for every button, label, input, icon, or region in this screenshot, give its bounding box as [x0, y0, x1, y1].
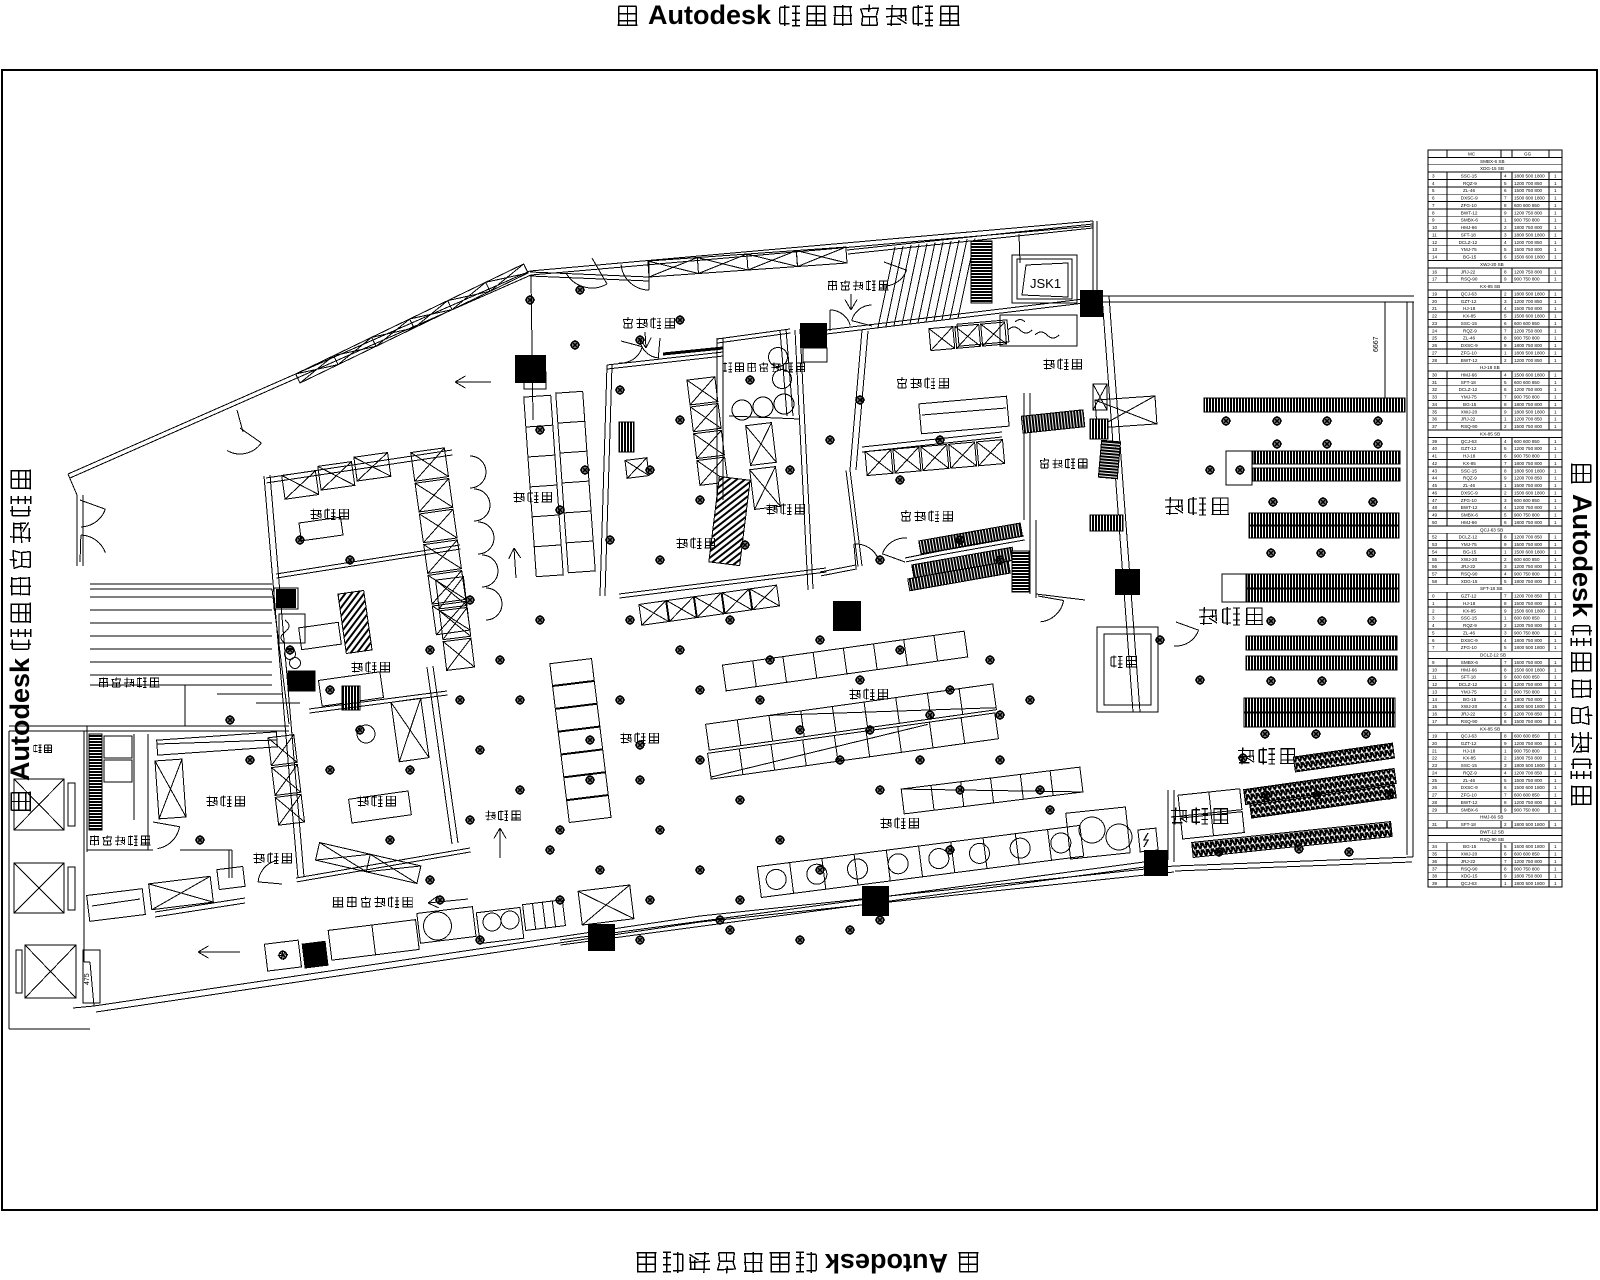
- svg-text:DCLZ-12: DCLZ-12: [1459, 240, 1478, 245]
- svg-text:600 600 850: 600 600 850: [1514, 321, 1540, 326]
- svg-text:8: 8: [1504, 535, 1507, 540]
- svg-text:600 600 850: 600 600 850: [1514, 498, 1540, 503]
- svg-text:12: 12: [1432, 682, 1438, 687]
- svg-text:XWJ-20: XWJ-20: [1461, 557, 1478, 562]
- svg-text:1200 750 800: 1200 750 800: [1514, 682, 1543, 687]
- svg-text:38: 38: [1432, 874, 1438, 879]
- svg-text:KX-85: KX-85: [1463, 608, 1476, 613]
- svg-text:XWJ-20: XWJ-20: [1461, 409, 1478, 414]
- svg-text:8: 8: [1504, 336, 1507, 341]
- svg-text:1: 1: [1554, 645, 1557, 650]
- svg-text:DXSC-9: DXSC-9: [1461, 638, 1478, 643]
- svg-text:Autodesk: Autodesk: [824, 1248, 948, 1278]
- svg-text:7: 7: [1504, 660, 1507, 665]
- svg-text:900 750 800: 900 750 800: [1514, 218, 1540, 223]
- svg-text:HMJ-66 SB: HMJ-66 SB: [1480, 815, 1504, 820]
- svg-text:1: 1: [1554, 225, 1557, 230]
- svg-text:600 600 850: 600 600 850: [1514, 439, 1540, 444]
- svg-text:5: 5: [1504, 446, 1507, 451]
- svg-text:JRJ-22: JRJ-22: [1461, 859, 1476, 864]
- svg-text:YMJ-75: YMJ-75: [1461, 247, 1477, 252]
- svg-text:11: 11: [1432, 233, 1437, 238]
- svg-text:16: 16: [1432, 712, 1438, 717]
- svg-text:1: 1: [1554, 859, 1557, 864]
- svg-text:2: 2: [1504, 689, 1507, 694]
- svg-text:1: 1: [1554, 785, 1557, 790]
- svg-text:9: 9: [1504, 807, 1507, 812]
- svg-text:3: 3: [1504, 233, 1507, 238]
- svg-text:1500 750 800: 1500 750 800: [1514, 542, 1543, 547]
- svg-text:BWT-12: BWT-12: [1461, 358, 1478, 363]
- svg-text:1: 1: [1554, 424, 1557, 429]
- svg-text:5: 5: [1504, 513, 1507, 518]
- svg-text:6: 6: [1504, 188, 1507, 193]
- svg-text:5: 5: [1432, 188, 1435, 193]
- svg-text:23: 23: [1432, 763, 1438, 768]
- svg-text:5: 5: [1504, 247, 1507, 252]
- svg-text:1800 500 1800: 1800 500 1800: [1514, 704, 1545, 709]
- svg-text:3: 3: [1504, 630, 1507, 635]
- svg-text:29: 29: [1432, 807, 1438, 812]
- svg-text:1: 1: [1554, 299, 1557, 304]
- svg-text:1500 750 800: 1500 750 800: [1514, 483, 1543, 488]
- svg-text:9: 9: [1504, 874, 1507, 879]
- svg-text:1800 750 800: 1800 750 800: [1514, 638, 1543, 643]
- svg-text:BG-15: BG-15: [1463, 402, 1477, 407]
- svg-text:1500 600 1800: 1500 600 1800: [1514, 490, 1545, 495]
- svg-text:SFT-18: SFT-18: [1461, 233, 1477, 238]
- svg-text:1: 1: [1554, 874, 1557, 879]
- svg-text:HMJ-66: HMJ-66: [1461, 667, 1478, 672]
- svg-text:DCLZ-12 SB: DCLZ-12 SB: [1480, 653, 1506, 658]
- svg-text:KX-85: KX-85: [1463, 314, 1476, 319]
- svg-text:1200 700 850: 1200 700 850: [1514, 712, 1543, 717]
- svg-text:24: 24: [1432, 328, 1438, 333]
- svg-text:SSC-15: SSC-15: [1461, 468, 1478, 473]
- svg-text:54: 54: [1432, 549, 1438, 554]
- svg-text:43: 43: [1432, 468, 1438, 473]
- svg-text:XDG-15: XDG-15: [1461, 579, 1478, 584]
- svg-text:1: 1: [1554, 844, 1557, 849]
- svg-text:QCJ-63: QCJ-63: [1461, 881, 1477, 886]
- svg-text:21: 21: [1432, 748, 1438, 753]
- svg-text:RSQ-90: RSQ-90: [1461, 572, 1478, 577]
- svg-text:DCLZ-12: DCLZ-12: [1459, 682, 1478, 687]
- svg-text:1: 1: [1554, 771, 1557, 776]
- svg-text:JRJ-22: JRJ-22: [1461, 417, 1476, 422]
- svg-text:1: 1: [1554, 667, 1557, 672]
- svg-text:1: 1: [1554, 608, 1557, 613]
- svg-text:3: 3: [1432, 616, 1435, 621]
- svg-text:2: 2: [1504, 424, 1507, 429]
- svg-text:40: 40: [1432, 446, 1438, 451]
- svg-text:5: 5: [1504, 712, 1507, 717]
- svg-text:5: 5: [1504, 579, 1507, 584]
- svg-text:1: 1: [1554, 748, 1557, 753]
- svg-text:1800 750 800: 1800 750 800: [1514, 520, 1543, 525]
- svg-text:YMJ-75: YMJ-75: [1461, 542, 1477, 547]
- svg-text:ZL-46: ZL-46: [1463, 778, 1475, 783]
- svg-text:900 750 800: 900 750 800: [1514, 807, 1540, 812]
- svg-text:1500 750 800: 1500 750 800: [1514, 719, 1543, 724]
- svg-text:HMJ-66: HMJ-66: [1461, 225, 1478, 230]
- svg-text:XWJ-20: XWJ-20: [1461, 852, 1478, 857]
- svg-text:3: 3: [1504, 299, 1507, 304]
- svg-text:1: 1: [1554, 454, 1557, 459]
- svg-text:1: 1: [1554, 572, 1557, 577]
- svg-text:7: 7: [1504, 859, 1507, 864]
- svg-text:1: 1: [1554, 756, 1557, 761]
- svg-text:22: 22: [1432, 314, 1438, 319]
- svg-text:33: 33: [1432, 395, 1438, 400]
- svg-text:27: 27: [1432, 350, 1438, 355]
- svg-text:4: 4: [1504, 638, 1507, 643]
- svg-text:600 600 850: 600 600 850: [1514, 734, 1540, 739]
- svg-text:1200 700 850: 1200 700 850: [1514, 358, 1543, 363]
- svg-text:4: 4: [1504, 306, 1507, 311]
- svg-text:8: 8: [1504, 402, 1507, 407]
- svg-text:6: 6: [1504, 520, 1507, 525]
- svg-text:900 750 800: 900 750 800: [1514, 748, 1540, 753]
- svg-text:ZFG-10: ZFG-10: [1461, 793, 1477, 798]
- svg-text:1500 750 800: 1500 750 800: [1514, 424, 1543, 429]
- svg-text:21: 21: [1432, 306, 1438, 311]
- svg-text:GZT-12: GZT-12: [1461, 446, 1477, 451]
- svg-text:1: 1: [1554, 822, 1557, 827]
- svg-text:6: 6: [1432, 196, 1435, 201]
- svg-text:1: 1: [1554, 513, 1557, 518]
- svg-text:1: 1: [1554, 852, 1557, 857]
- svg-text:36: 36: [1432, 859, 1438, 864]
- svg-text:35: 35: [1432, 852, 1438, 857]
- svg-text:7: 7: [1504, 594, 1507, 599]
- svg-text:RQZ-9: RQZ-9: [1463, 771, 1477, 776]
- svg-text:MC: MC: [1468, 151, 1476, 156]
- svg-text:9: 9: [1504, 542, 1507, 547]
- svg-text:1800 500 1800: 1800 500 1800: [1514, 822, 1545, 827]
- svg-text:1200 700 850: 1200 700 850: [1514, 299, 1543, 304]
- svg-text:53: 53: [1432, 542, 1438, 547]
- svg-text:SMBX-6: SMBX-6: [1461, 660, 1479, 665]
- svg-text:1500 600 1800: 1500 600 1800: [1514, 314, 1545, 319]
- svg-text:6: 6: [1504, 785, 1507, 790]
- svg-text:1: 1: [1504, 549, 1507, 554]
- svg-text:ZFG-10: ZFG-10: [1461, 498, 1477, 503]
- svg-text:4: 4: [1504, 174, 1507, 179]
- svg-text:26: 26: [1432, 785, 1438, 790]
- svg-text:1: 1: [1554, 188, 1557, 193]
- svg-text:600 600 850: 600 600 850: [1514, 557, 1540, 562]
- svg-text:0: 0: [1432, 594, 1435, 599]
- svg-text:1500 600 1800: 1500 600 1800: [1514, 373, 1545, 378]
- svg-text:GZT-12: GZT-12: [1461, 594, 1477, 599]
- svg-text:34: 34: [1432, 844, 1438, 849]
- svg-text:1500 600 1800: 1500 600 1800: [1514, 255, 1545, 260]
- svg-text:7: 7: [1504, 461, 1507, 466]
- svg-text:26: 26: [1432, 343, 1438, 348]
- svg-text:8: 8: [1504, 667, 1507, 672]
- svg-text:1200 750 800: 1200 750 800: [1514, 505, 1543, 510]
- svg-text:14: 14: [1432, 697, 1438, 702]
- svg-text:1500 750 800: 1500 750 800: [1514, 778, 1543, 783]
- svg-text:KX-85: KX-85: [1463, 461, 1476, 466]
- svg-text:6: 6: [1504, 321, 1507, 326]
- svg-text:600 600 850: 600 600 850: [1514, 616, 1540, 621]
- svg-text:DXSC-9: DXSC-9: [1461, 196, 1478, 201]
- svg-text:9: 9: [1504, 343, 1507, 348]
- svg-text:7: 7: [1432, 203, 1435, 208]
- svg-text:20: 20: [1432, 299, 1438, 304]
- svg-text:GZT-12: GZT-12: [1461, 741, 1477, 746]
- svg-text:47: 47: [1432, 498, 1438, 503]
- svg-text:1: 1: [1554, 402, 1557, 407]
- svg-text:1500 600 1800: 1500 600 1800: [1514, 608, 1545, 613]
- svg-text:ZFG-10: ZFG-10: [1461, 350, 1477, 355]
- svg-text:39: 39: [1432, 881, 1438, 886]
- svg-text:39: 39: [1432, 439, 1438, 444]
- svg-text:1: 1: [1554, 255, 1557, 260]
- svg-text:41: 41: [1432, 454, 1438, 459]
- svg-text:1800 500 1800: 1800 500 1800: [1514, 763, 1545, 768]
- svg-text:6: 6: [1504, 852, 1507, 857]
- svg-text:HJ-18: HJ-18: [1463, 306, 1476, 311]
- svg-text:1500 750 800: 1500 750 800: [1514, 188, 1543, 193]
- svg-text:2: 2: [1432, 608, 1435, 613]
- svg-text:1: 1: [1554, 697, 1557, 702]
- svg-text:1800 500 1800: 1800 500 1800: [1514, 233, 1545, 238]
- svg-text:50: 50: [1432, 520, 1438, 525]
- svg-text:SFT-18 SB: SFT-18 SB: [1480, 586, 1502, 591]
- svg-text:1: 1: [1554, 468, 1557, 473]
- svg-text:15: 15: [1432, 704, 1438, 709]
- svg-text:1800 500 1800: 1800 500 1800: [1514, 291, 1545, 296]
- svg-text:5: 5: [1504, 844, 1507, 849]
- svg-text:HMJ-66: HMJ-66: [1461, 520, 1478, 525]
- svg-text:1: 1: [1554, 336, 1557, 341]
- svg-text:6: 6: [1504, 255, 1507, 260]
- svg-text:YMJ-75: YMJ-75: [1461, 689, 1477, 694]
- svg-text:1: 1: [1554, 564, 1557, 569]
- svg-text:1: 1: [1554, 793, 1557, 798]
- svg-text:1: 1: [1554, 807, 1557, 812]
- svg-text:1: 1: [1554, 395, 1557, 400]
- svg-text:25: 25: [1432, 336, 1438, 341]
- svg-text:1200 750 800: 1200 750 800: [1514, 741, 1543, 746]
- svg-text:8: 8: [1504, 269, 1507, 274]
- svg-text:BWT-12 SB: BWT-12 SB: [1480, 829, 1504, 834]
- svg-text:37: 37: [1432, 424, 1438, 429]
- svg-text:1: 1: [1554, 675, 1557, 680]
- svg-text:9: 9: [1504, 476, 1507, 481]
- svg-text:28: 28: [1432, 800, 1438, 805]
- svg-text:4: 4: [1504, 439, 1507, 444]
- svg-text:8: 8: [1432, 210, 1435, 215]
- svg-text:900 750 800: 900 750 800: [1514, 513, 1540, 518]
- svg-text:1800 750 800: 1800 750 800: [1514, 343, 1543, 348]
- svg-text:900 750 800: 900 750 800: [1514, 630, 1540, 635]
- svg-text:1: 1: [1554, 601, 1557, 606]
- svg-text:SFT-18: SFT-18: [1461, 822, 1477, 827]
- svg-text:600 600 850: 600 600 850: [1514, 793, 1540, 798]
- svg-text:8: 8: [1504, 734, 1507, 739]
- svg-text:22: 22: [1432, 756, 1438, 761]
- svg-text:31: 31: [1432, 822, 1438, 827]
- svg-text:1: 1: [1554, 623, 1557, 628]
- svg-text:1: 1: [1554, 490, 1557, 495]
- svg-text:1: 1: [1554, 439, 1557, 444]
- svg-text:5: 5: [1432, 630, 1435, 635]
- svg-text:1: 1: [1554, 343, 1557, 348]
- svg-text:2: 2: [1504, 623, 1507, 628]
- svg-text:9: 9: [1504, 675, 1507, 680]
- svg-text:2: 2: [1504, 822, 1507, 827]
- svg-text:1: 1: [1554, 498, 1557, 503]
- svg-text:1: 1: [1554, 328, 1557, 333]
- svg-text:1200 750 800: 1200 750 800: [1514, 446, 1543, 451]
- svg-text:57: 57: [1432, 572, 1438, 577]
- svg-text:4: 4: [1432, 181, 1435, 186]
- svg-text:1200 700 850: 1200 700 850: [1514, 476, 1543, 481]
- svg-text:900 750 800: 900 750 800: [1514, 866, 1540, 871]
- svg-text:3: 3: [1504, 697, 1507, 702]
- svg-text:1: 1: [1554, 712, 1557, 717]
- svg-text:1: 1: [1554, 660, 1557, 665]
- svg-text:1: 1: [1554, 800, 1557, 805]
- svg-text:4: 4: [1504, 704, 1507, 709]
- svg-text:23: 23: [1432, 321, 1438, 326]
- svg-text:3: 3: [1432, 174, 1435, 179]
- svg-text:1: 1: [1504, 417, 1507, 422]
- svg-text:1: 1: [1554, 291, 1557, 296]
- svg-text:1: 1: [1554, 549, 1557, 554]
- svg-text:1: 1: [1504, 682, 1507, 687]
- svg-text:35: 35: [1432, 409, 1438, 414]
- svg-text:1: 1: [1554, 535, 1557, 540]
- svg-text:9: 9: [1504, 608, 1507, 613]
- svg-text:2: 2: [1504, 225, 1507, 230]
- svg-text:1800 750 800: 1800 750 800: [1514, 579, 1543, 584]
- svg-text:RSQ-90: RSQ-90: [1461, 424, 1478, 429]
- svg-text:HMJ-66: HMJ-66: [1461, 373, 1478, 378]
- svg-text:1: 1: [1554, 881, 1557, 886]
- svg-text:1500 750 800: 1500 750 800: [1514, 247, 1543, 252]
- svg-text:12: 12: [1432, 240, 1438, 245]
- svg-text:8: 8: [1504, 203, 1507, 208]
- svg-text:475: 475: [84, 973, 91, 985]
- svg-text:8: 8: [1504, 468, 1507, 473]
- svg-text:27: 27: [1432, 793, 1438, 798]
- svg-text:24: 24: [1432, 771, 1438, 776]
- svg-text:1200 700 850: 1200 700 850: [1514, 535, 1543, 540]
- svg-text:1200 750 800: 1200 750 800: [1514, 623, 1543, 628]
- svg-text:1: 1: [1554, 409, 1557, 414]
- svg-text:42: 42: [1432, 461, 1438, 466]
- svg-text:44: 44: [1432, 476, 1438, 481]
- svg-text:900 750 800: 900 750 800: [1514, 277, 1540, 282]
- svg-text:16: 16: [1432, 269, 1438, 274]
- svg-text:9: 9: [1504, 277, 1507, 282]
- svg-text:5: 5: [1504, 645, 1507, 650]
- svg-text:GG: GG: [1524, 151, 1532, 156]
- svg-text:1: 1: [1554, 778, 1557, 783]
- svg-text:56: 56: [1432, 564, 1438, 569]
- svg-text:9: 9: [1504, 210, 1507, 215]
- svg-text:1: 1: [1554, 557, 1557, 562]
- svg-text:1: 1: [1554, 240, 1557, 245]
- svg-text:1: 1: [1432, 601, 1435, 606]
- svg-text:1: 1: [1554, 483, 1557, 488]
- svg-text:2: 2: [1504, 490, 1507, 495]
- svg-text:KX-85 SB: KX-85 SB: [1480, 432, 1500, 437]
- svg-text:9: 9: [1432, 218, 1435, 223]
- svg-text:5: 5: [1504, 380, 1507, 385]
- svg-text:DXSC-9: DXSC-9: [1461, 343, 1478, 348]
- svg-text:1: 1: [1554, 682, 1557, 687]
- svg-text:KX-85 SB: KX-85 SB: [1480, 284, 1500, 289]
- svg-text:SMBX-6: SMBX-6: [1461, 807, 1479, 812]
- svg-text:XDG-15: XDG-15: [1461, 874, 1478, 879]
- svg-text:RSQ-90: RSQ-90: [1461, 866, 1478, 871]
- svg-text:1: 1: [1554, 417, 1557, 422]
- svg-text:1200 700 850: 1200 700 850: [1514, 240, 1543, 245]
- svg-text:1: 1: [1554, 233, 1557, 238]
- svg-text:QCJ-63 SB: QCJ-63 SB: [1480, 527, 1503, 532]
- svg-text:ZL-46: ZL-46: [1463, 483, 1475, 488]
- svg-text:1500 600 1800: 1500 600 1800: [1514, 196, 1545, 201]
- svg-text:4: 4: [1504, 373, 1507, 378]
- svg-text:1500 600 1800: 1500 600 1800: [1514, 667, 1545, 672]
- svg-text:8: 8: [1504, 866, 1507, 871]
- svg-text:1: 1: [1554, 277, 1557, 282]
- svg-text:1200 750 800: 1200 750 800: [1514, 328, 1543, 333]
- svg-text:600 600 850: 600 600 850: [1514, 852, 1540, 857]
- svg-text:1200 750 800: 1200 750 800: [1514, 269, 1543, 274]
- svg-text:1200 750 800: 1200 750 800: [1514, 859, 1543, 864]
- svg-text:1: 1: [1554, 387, 1557, 392]
- svg-text:1: 1: [1554, 542, 1557, 547]
- svg-text:7: 7: [1504, 395, 1507, 400]
- svg-text:6667: 6667: [1373, 336, 1380, 352]
- svg-text:1: 1: [1554, 196, 1557, 201]
- svg-text:1: 1: [1554, 704, 1557, 709]
- svg-text:DXSC-9: DXSC-9: [1461, 490, 1478, 495]
- svg-text:ZL-46: ZL-46: [1463, 630, 1475, 635]
- svg-text:XWJ-20: XWJ-20: [1461, 704, 1478, 709]
- svg-text:HJ-18: HJ-18: [1463, 454, 1476, 459]
- svg-text:48: 48: [1432, 505, 1438, 510]
- svg-text:1200 700 850: 1200 700 850: [1514, 594, 1543, 599]
- svg-text:RQZ-9: RQZ-9: [1463, 476, 1477, 481]
- svg-text:DXSC-9: DXSC-9: [1461, 785, 1478, 790]
- svg-text:1: 1: [1504, 748, 1507, 753]
- svg-text:GZT-12: GZT-12: [1461, 299, 1477, 304]
- svg-text:SMBX-6 SB: SMBX-6 SB: [1480, 159, 1505, 164]
- svg-text:17: 17: [1432, 277, 1438, 282]
- svg-text:45: 45: [1432, 483, 1438, 488]
- svg-text:6: 6: [1432, 638, 1435, 643]
- svg-text:BG-15: BG-15: [1463, 697, 1477, 702]
- svg-text:HJ-18: HJ-18: [1463, 748, 1476, 753]
- svg-text:SSC-15: SSC-15: [1461, 616, 1478, 621]
- svg-text:1: 1: [1554, 314, 1557, 319]
- svg-text:XWJ-20 SB: XWJ-20 SB: [1480, 262, 1504, 267]
- svg-text:ZFG-10: ZFG-10: [1461, 203, 1477, 208]
- svg-text:1: 1: [1504, 616, 1507, 621]
- svg-text:3: 3: [1504, 763, 1507, 768]
- svg-text:4: 4: [1504, 771, 1507, 776]
- svg-text:DCLZ-12: DCLZ-12: [1459, 535, 1478, 540]
- svg-text:28: 28: [1432, 358, 1438, 363]
